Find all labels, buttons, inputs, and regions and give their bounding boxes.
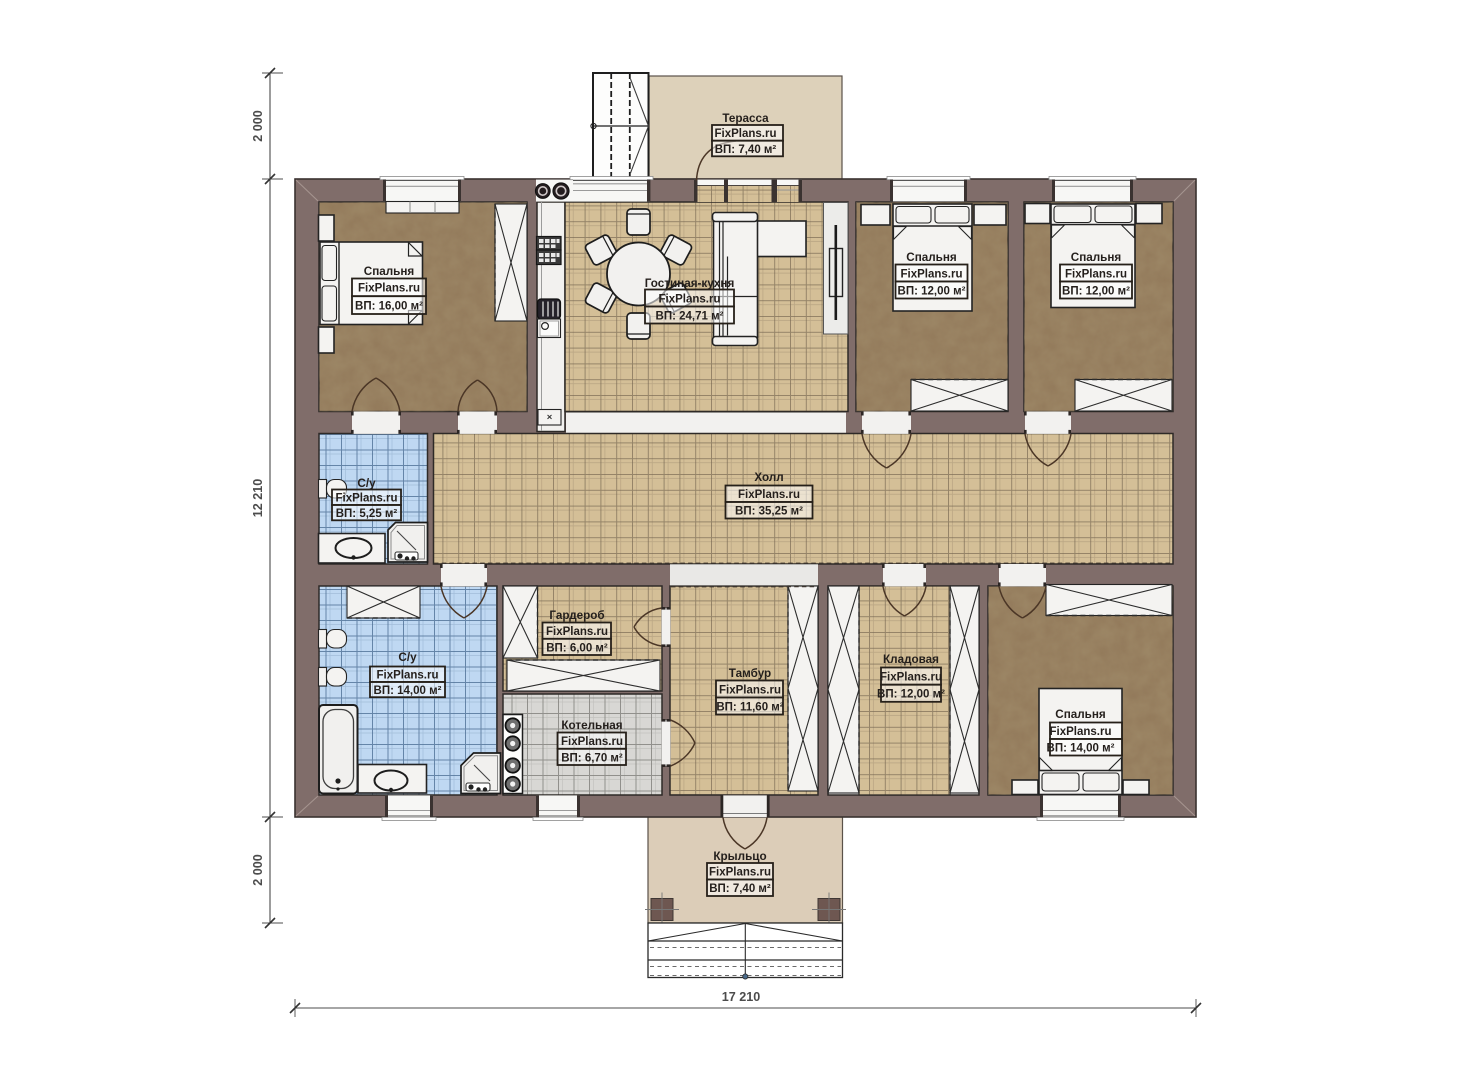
svg-text:ВП: 12,00 м²: ВП: 12,00 м² xyxy=(877,689,945,701)
svg-text:ВП: 7,40 м²: ВП: 7,40 м² xyxy=(709,883,771,895)
svg-text:2 000: 2 000 xyxy=(251,110,265,142)
svg-text:Тамбур: Тамбур xyxy=(729,667,771,680)
svg-text:Спальня: Спальня xyxy=(1055,708,1106,721)
svg-text:Кладовая: Кладовая xyxy=(883,653,939,666)
svg-text:FixPlans.ru: FixPlans.ru xyxy=(659,293,721,305)
svg-text:ВП: 6,70 м²: ВП: 6,70 м² xyxy=(561,752,623,764)
svg-text:FixPlans.ru: FixPlans.ru xyxy=(377,670,439,682)
svg-text:17 210: 17 210 xyxy=(722,990,761,1004)
svg-text:FixPlans.ru: FixPlans.ru xyxy=(880,671,942,683)
svg-text:FixPlans.ru: FixPlans.ru xyxy=(719,684,781,696)
svg-text:ВП: 7,40 м²: ВП: 7,40 м² xyxy=(715,144,777,156)
svg-text:ВП: 24,71 м²: ВП: 24,71 м² xyxy=(656,310,724,322)
svg-text:ВП: 5,25 м²: ВП: 5,25 м² xyxy=(336,508,398,520)
svg-text:Спальня: Спальня xyxy=(906,251,957,264)
svg-text:ВП: 14,00 м²: ВП: 14,00 м² xyxy=(374,685,442,697)
svg-text:Спальня: Спальня xyxy=(1071,251,1122,264)
svg-text:FixPlans.ru: FixPlans.ru xyxy=(1050,726,1112,738)
svg-text:С/у: С/у xyxy=(357,477,376,490)
svg-text:ВП: 12,00 м²: ВП: 12,00 м² xyxy=(898,285,966,297)
svg-text:FixPlans.ru: FixPlans.ru xyxy=(901,268,963,280)
svg-text:2 000: 2 000 xyxy=(251,854,265,886)
svg-text:ВП: 16,00 м²: ВП: 16,00 м² xyxy=(355,300,423,312)
svg-text:FixPlans.ru: FixPlans.ru xyxy=(358,283,420,295)
svg-text:Крыльцо: Крыльцо xyxy=(713,850,766,863)
svg-text:Холл: Холл xyxy=(754,471,783,484)
svg-text:FixPlans.ru: FixPlans.ru xyxy=(561,736,623,748)
svg-text:Котельная: Котельная xyxy=(561,719,622,732)
svg-text:FixPlans.ru: FixPlans.ru xyxy=(715,128,777,140)
svg-text:ВП: 12,00 м²: ВП: 12,00 м² xyxy=(1062,285,1130,297)
svg-text:Гостиная-кухня: Гостиная-кухня xyxy=(645,277,735,290)
svg-text:12 210: 12 210 xyxy=(251,479,265,518)
svg-text:ВП: 6,00 м²: ВП: 6,00 м² xyxy=(546,642,608,654)
svg-text:Терасса: Терасса xyxy=(722,112,769,125)
svg-text:ВП: 14,00 м²: ВП: 14,00 м² xyxy=(1047,743,1115,755)
svg-text:Гардероб: Гардероб xyxy=(549,609,604,622)
svg-text:FixPlans.ru: FixPlans.ru xyxy=(738,489,800,501)
svg-text:FixPlans.ru: FixPlans.ru xyxy=(1065,268,1127,280)
svg-text:Спальня: Спальня xyxy=(364,265,415,278)
svg-text:ВП: 11,60 м²: ВП: 11,60 м² xyxy=(716,701,783,713)
svg-text:FixPlans.ru: FixPlans.ru xyxy=(336,493,398,505)
svg-text:FixPlans.ru: FixPlans.ru xyxy=(709,867,771,879)
svg-text:FixPlans.ru: FixPlans.ru xyxy=(546,626,608,638)
svg-text:С/у: С/у xyxy=(398,651,417,664)
svg-text:×: × xyxy=(547,412,553,423)
svg-text:ВП: 35,25 м²: ВП: 35,25 м² xyxy=(735,506,803,518)
